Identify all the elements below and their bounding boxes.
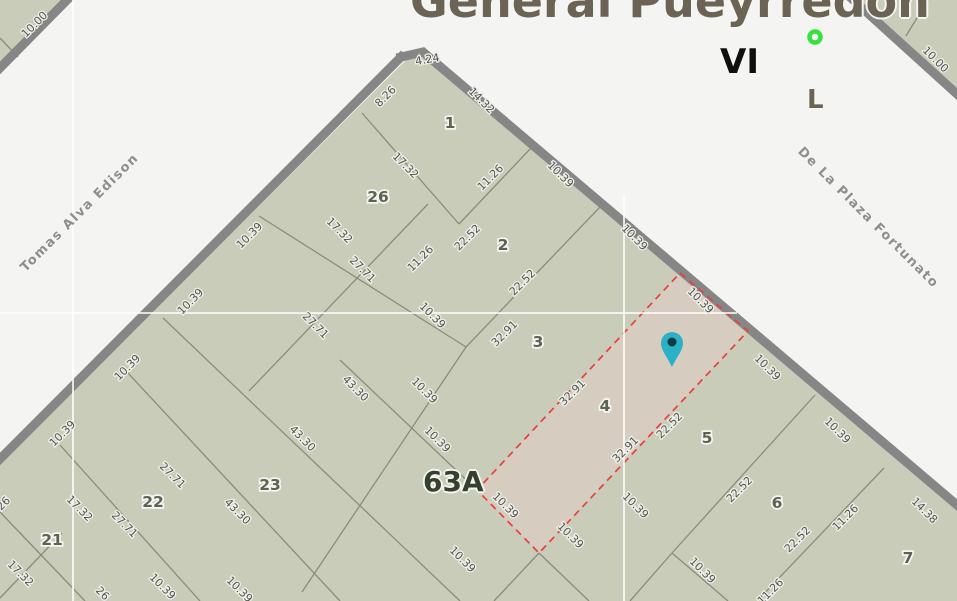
parcel-number-label: 6: [772, 494, 783, 512]
parcel-number-label: 26: [367, 188, 389, 206]
green-point-marker[interactable]: [810, 32, 821, 43]
parcel-number-label: 4: [600, 397, 611, 415]
parcel-number-label: 21: [41, 531, 63, 549]
map-title: General Pueyrredon: [410, 0, 930, 28]
parcel-number-label: 2: [498, 236, 509, 254]
cadastral-map-viewport[interactable]: 10.0010.004.248.2614.3217.3211.2610.3917…: [0, 0, 957, 601]
parcel-number-label: 22: [142, 493, 164, 511]
main-block-fill: [0, 55, 957, 601]
district-letter-label: L: [807, 85, 824, 115]
parcel-number-label: 7: [903, 549, 914, 567]
parcel-number-label: 5: [702, 429, 713, 447]
parcel-number-label: 3: [533, 333, 544, 351]
parcel-number-label: 1: [445, 114, 456, 132]
block-number-label: 63A: [423, 465, 484, 498]
district-roman-label: VI: [720, 42, 759, 82]
parcel-number-label: 23: [259, 476, 281, 494]
